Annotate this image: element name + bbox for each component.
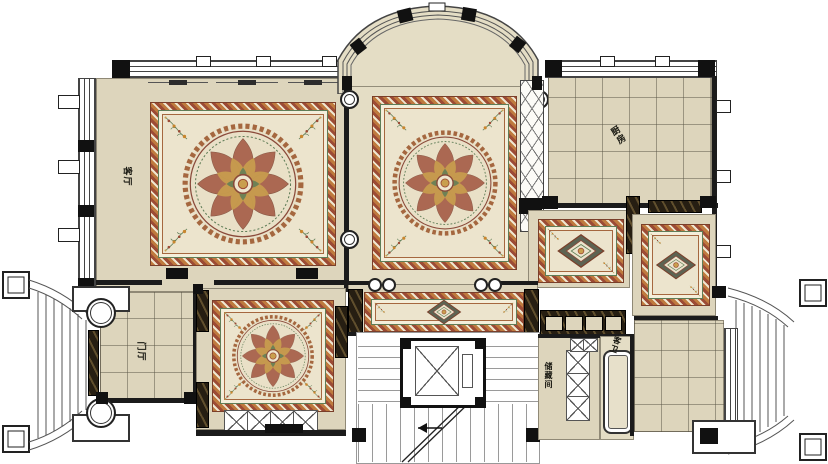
hall-column [340, 230, 359, 249]
living-room-rug-field [158, 110, 328, 258]
entrance-marble-strip [88, 330, 99, 396]
wall-corner-block [698, 60, 715, 77]
elevator-cab [415, 346, 459, 396]
living-room-label: 客厅 [122, 166, 135, 186]
wall-corner-block [342, 76, 352, 90]
entrance-hall-label: 门厅 [136, 341, 149, 361]
window-stub [716, 100, 731, 113]
door-swing-box [583, 338, 598, 352]
door-leaf [166, 268, 188, 279]
corridor-column [368, 278, 382, 292]
door-leaf [296, 268, 318, 279]
wall-segment [96, 280, 162, 285]
window-stub [58, 160, 80, 174]
kitchen-floor [548, 76, 712, 206]
room-b-rug-field [648, 231, 703, 299]
corridor-marble-east [524, 289, 539, 333]
room-a-rug-field [545, 226, 617, 276]
wall-segment [348, 281, 370, 285]
study-room-rug-field [220, 308, 326, 404]
terrace-balustrade [724, 328, 738, 434]
porch-column [86, 298, 116, 328]
wall-segment [634, 316, 718, 320]
window-mullion [256, 56, 271, 67]
window-mullion-black [78, 205, 94, 217]
storage-shelf-lattice [566, 350, 588, 419]
hall-cabinet [540, 310, 626, 336]
kitchen-north-window [545, 60, 717, 78]
window-stub [716, 170, 731, 183]
living-room-rug [150, 102, 336, 266]
corridor-column [474, 278, 488, 292]
window-mullion [600, 56, 615, 67]
marble-strip [648, 200, 702, 213]
corridor-runner-rug [364, 292, 524, 332]
wall-corner-block [112, 60, 130, 78]
wall-corner-block [712, 286, 726, 298]
storage-room-label: 储藏间 [543, 362, 554, 389]
hall-column [340, 90, 359, 109]
dimension-arrow [288, 82, 338, 83]
wall-corner-block [532, 76, 542, 90]
wall-corner-block [184, 392, 196, 404]
window-mullion [655, 56, 670, 67]
wall-corner-block [96, 392, 108, 404]
room-a-rug [538, 219, 624, 283]
wall-segment [214, 280, 348, 285]
marble-strip [335, 306, 348, 358]
wall-corner-block [352, 428, 366, 442]
window-mullion [322, 56, 337, 67]
wall-corner-block [193, 284, 203, 294]
corridor-marble-west [348, 289, 363, 333]
window-mullion [196, 56, 211, 67]
terrace-column [700, 428, 718, 444]
dimension-arrow [216, 82, 278, 83]
room-b-rug [641, 224, 710, 306]
hall-rug [372, 96, 517, 270]
hall-rug-field [380, 104, 509, 262]
door-leaf [265, 424, 303, 433]
elevator-shaft [400, 338, 486, 408]
wall-corner-block [700, 196, 716, 208]
marble-strip [196, 290, 209, 332]
window-mullion-black [78, 140, 94, 152]
study-room-rug [212, 300, 334, 412]
terrace-floor [634, 320, 724, 432]
corridor-column [488, 278, 502, 292]
living-room-north-window [112, 60, 350, 78]
living-room-west-window [78, 78, 96, 294]
corridor-column [382, 278, 396, 292]
bay-window-arch [336, 2, 540, 94]
floor-plan-canvas: 客厅 厨房 门厅 [0, 0, 828, 464]
corridor-runner-field [371, 299, 517, 325]
window-stub [716, 245, 731, 258]
bathtub [603, 350, 633, 434]
window-stub [58, 95, 80, 109]
wall-corner-block [542, 196, 558, 209]
window-stub [58, 228, 80, 242]
wall-corner-block [545, 60, 562, 77]
marble-strip [196, 382, 209, 428]
dimension-arrow [148, 82, 208, 83]
